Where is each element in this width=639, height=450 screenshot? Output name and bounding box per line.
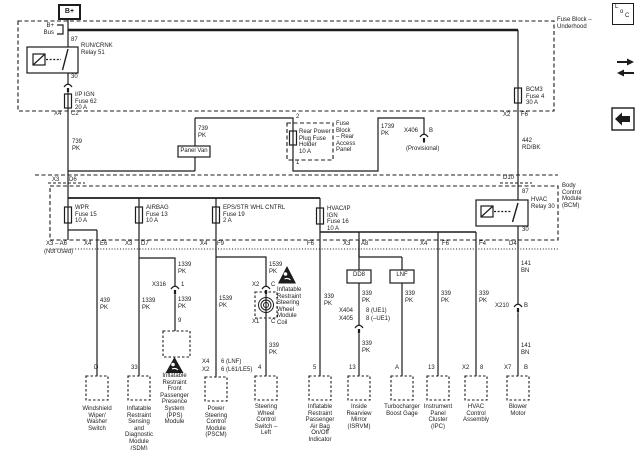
connector-d7: D7	[141, 241, 149, 248]
blower-motor-box	[507, 376, 529, 400]
panel-van-option-label: Panel Van	[178, 148, 210, 155]
wire-label-339-pk: 339 PK	[479, 291, 489, 304]
relay30-box	[476, 200, 528, 226]
fuse-airbag-label: AIRBAG Fuse 13 10 A	[146, 205, 169, 225]
wire-label-339-pk: 339 PK	[362, 341, 372, 354]
x406-connector-arc	[420, 134, 428, 137]
relay51-box	[27, 47, 78, 73]
connector-x2: X2	[503, 112, 510, 119]
fuse-block-underhood-box	[18, 21, 554, 111]
dd8-option-label: DD8	[347, 272, 371, 279]
connector-x316-pin-1: 1	[181, 282, 184, 289]
wire-label-439-pk: 439 PK	[100, 298, 110, 311]
connector-x4: X4	[84, 241, 91, 248]
b-bus-bracket	[57, 25, 63, 34]
pin-6-lnf: 6 (LNF)	[221, 359, 241, 366]
connector-x2: X2	[252, 282, 259, 289]
x316-connector-arc	[171, 286, 179, 289]
fuse-hvac-label: HVAC/IP IGN Fuse 16 10 A	[327, 206, 351, 232]
rear-fuse-pin-2: 2	[296, 114, 299, 121]
loc-icon-letter-o: o	[620, 9, 623, 16]
fuse62-label: I/P IGN Fuse 62 20 A	[75, 92, 97, 112]
wire-label-339-pk: 339 PK	[405, 291, 415, 304]
component-label-wiper-switch: Windshield Wiper/ Washer Switch	[79, 406, 115, 432]
fuse-block-underhood-label: Fuse Block – Underhood	[557, 17, 592, 30]
wiring-diagram-canvas	[0, 0, 639, 450]
fuse-bcm3-label: BCM3 Fuse 4 30 A	[526, 87, 544, 107]
relay51-label: RUN/CRNK Relay 51	[81, 43, 113, 56]
wire-label-141-bn: 141 BN	[521, 261, 531, 274]
provisional-note: (Provisional)	[406, 146, 439, 153]
pps-module-box	[163, 331, 190, 357]
bcm-name-label: Body Control Module (BCM)	[562, 183, 582, 209]
x404-connector-stub	[358, 329, 360, 334]
connector-f9: F9	[217, 241, 224, 248]
wire-label-1539-pk: 1539 PK	[269, 262, 282, 275]
component-label-hvac-control: HVAC Control Assembly	[454, 404, 498, 424]
pin-b: B	[524, 365, 528, 372]
harness-routing-icon[interactable]	[617, 59, 634, 77]
not-used-note: (Not Used)	[44, 249, 73, 256]
wiring-diagram-page: B+ B+ Bus 87 RUN/CRNK Relay 51 30 I/P IG…	[0, 0, 639, 450]
lnf-option-label: LNF	[390, 272, 414, 279]
wire-label-442-rdbk: 442 RD/BK	[522, 138, 540, 151]
pin-8-minus-ue1: 8 (–UE1)	[366, 316, 390, 323]
component-label-pscm: Power Steering Control Module (PSCM)	[196, 406, 236, 439]
connector-x210: X210	[495, 303, 509, 310]
connector-a8: A8	[361, 241, 368, 248]
wire-label-739-pk: 739 PK	[198, 126, 208, 139]
back-arrow-icon[interactable]	[612, 108, 634, 130]
x210-connector-arc	[514, 304, 522, 307]
connector-x2: X2	[462, 365, 469, 372]
connector-x4: X4	[54, 111, 61, 118]
component-label-isrvm: Inside Rearview Mirror (ISRVM)	[338, 404, 380, 430]
connector-f6: F6	[442, 241, 449, 248]
pin-33: 33	[131, 365, 138, 372]
pin-c: C	[271, 282, 275, 289]
connector-f6: F6	[307, 241, 314, 248]
fuse-wpr-label: WPR Fuse 15 10 A	[75, 205, 97, 225]
connector-x3: X3	[343, 241, 350, 248]
wire-label-339-pk: 339 PK	[362, 291, 372, 304]
connector-f4: F4	[479, 241, 486, 248]
wire-label-1339-pk: 1339 PK	[178, 297, 191, 310]
warning-glyph-detail	[284, 273, 287, 276]
connector-x404: X404	[339, 308, 353, 315]
inline-connector-arc-top	[64, 84, 72, 87]
connector-x405: X405	[339, 316, 353, 323]
component-label-sdm: Inflatable Restraint Sensing and Diagnos…	[121, 406, 157, 450]
connector-x4: X4	[200, 241, 207, 248]
pin-13: 13	[349, 365, 356, 372]
connector-e6: E6	[100, 241, 107, 248]
inline-connector-stub-top	[67, 88, 69, 93]
steering-switch-box	[255, 376, 277, 400]
connector-x406-pin-b: B	[429, 128, 433, 135]
boost-gage-box	[391, 376, 413, 400]
wire-label-339-pk: 339 PK	[441, 291, 451, 304]
component-label-pps-module: Inflatable Restraint Front Passenger Pre…	[155, 373, 194, 426]
connector-x4: X4	[420, 241, 427, 248]
pin-c: C	[271, 319, 275, 326]
wiper-switch-box	[86, 376, 108, 400]
x406-connector-stub	[423, 138, 425, 143]
relay51-pin-87: 87	[71, 37, 78, 44]
bcm-box	[50, 186, 558, 240]
pin-4: 4	[258, 365, 261, 372]
relay51-pin-30: 30	[71, 74, 78, 81]
isrvm-box	[348, 376, 370, 400]
wire-label-1339-pk: 1339 PK	[142, 298, 155, 311]
connector-c2: C2	[71, 111, 79, 118]
connector-d4: D4	[509, 241, 517, 248]
relay30-label: HVAC Relay 30	[531, 197, 555, 210]
relay30-pin-87: 87	[522, 189, 529, 196]
pin-9: 9	[178, 318, 181, 325]
connector-x210-pin-b: B	[524, 303, 528, 310]
pin-8: 8	[480, 365, 483, 372]
wire-label-339-pk: 339 PK	[324, 294, 334, 307]
wire-label-1339-pk: 1339 PK	[178, 262, 191, 275]
pin-5: 5	[313, 365, 316, 372]
connector-x406: X406	[404, 128, 418, 135]
loc-icon-letter-l: L	[615, 4, 618, 11]
x210-connector-stub	[517, 308, 519, 313]
relay30-coil-diagonal	[481, 206, 493, 217]
pin-a: A	[395, 365, 399, 372]
connector-x316: X316	[152, 282, 166, 289]
sdm-box	[128, 376, 150, 400]
component-label-blower-motor: Blower Motor	[498, 404, 538, 417]
rear-fuse-label: Rear Power Plug Fuse Holder 10 A	[299, 129, 331, 155]
loc-icon-letter-c: C	[625, 13, 629, 20]
ipc-box	[427, 376, 449, 400]
component-label-airbag-indicator: Inflatable Restraint Passenger Air Bag O…	[299, 404, 341, 444]
b-bus-label: B+ Bus	[36, 23, 54, 36]
pin-13: 13	[428, 365, 435, 372]
connector-x4: X4	[202, 359, 209, 366]
connector-d6: D6	[69, 177, 77, 184]
relay30-pin-30: 30	[522, 227, 529, 234]
airbag-indicator-box	[309, 376, 331, 400]
wire-label-1539-pk: 1539 PK	[219, 296, 232, 309]
fuse-eps-label: EPS/STR WHL CNTRL Fuse 19 2 A	[223, 205, 285, 225]
rear-fuse-pin-1: 1	[296, 160, 299, 167]
relay51-coil-diagonal	[33, 54, 45, 65]
connector-x3-a6: X3 – A6	[46, 241, 67, 248]
connector-x7: X7	[504, 365, 511, 372]
connector-d10: D10	[503, 175, 514, 182]
wire-label-739-pk: 739 PK	[72, 139, 82, 152]
hvac-control-box	[465, 376, 487, 400]
warning-glyph-detail	[172, 363, 175, 366]
connector-x3: X3	[52, 177, 59, 184]
connector-f6: F6	[521, 112, 528, 119]
connector-x2: X2	[202, 367, 209, 374]
x404-connector-arc	[355, 325, 363, 328]
x316-connector-stub	[174, 290, 176, 295]
coil-connector-arc	[262, 286, 270, 289]
pscm-box	[205, 377, 227, 401]
pin-8-ue1: 8 (UE1)	[366, 308, 387, 315]
connector-x3: X3	[125, 241, 132, 248]
pin-6-l61-le5: 6 (L61/LE5)	[221, 367, 252, 374]
component-label-steering-switch: Steering Wheel Control Switch – Left	[246, 404, 286, 437]
wire-label-339-pk: 339 PK	[269, 343, 279, 356]
connector-x1: X1	[252, 319, 259, 326]
b-plus-terminal: B+	[58, 4, 81, 20]
component-label-coil: Inflatable Restraint Steering Wheel Modu…	[277, 287, 301, 327]
rear-fuse-block-label: Fuse Block – Rear Access Panel	[336, 121, 355, 154]
wire-label-141-bn: 141 BN	[521, 343, 531, 356]
wire-label-1739-pk: 1739 PK	[381, 124, 394, 137]
relay51-switch-blade	[63, 49, 69, 70]
pin-d: D	[94, 365, 98, 372]
relay30-switch-blade	[513, 203, 519, 222]
